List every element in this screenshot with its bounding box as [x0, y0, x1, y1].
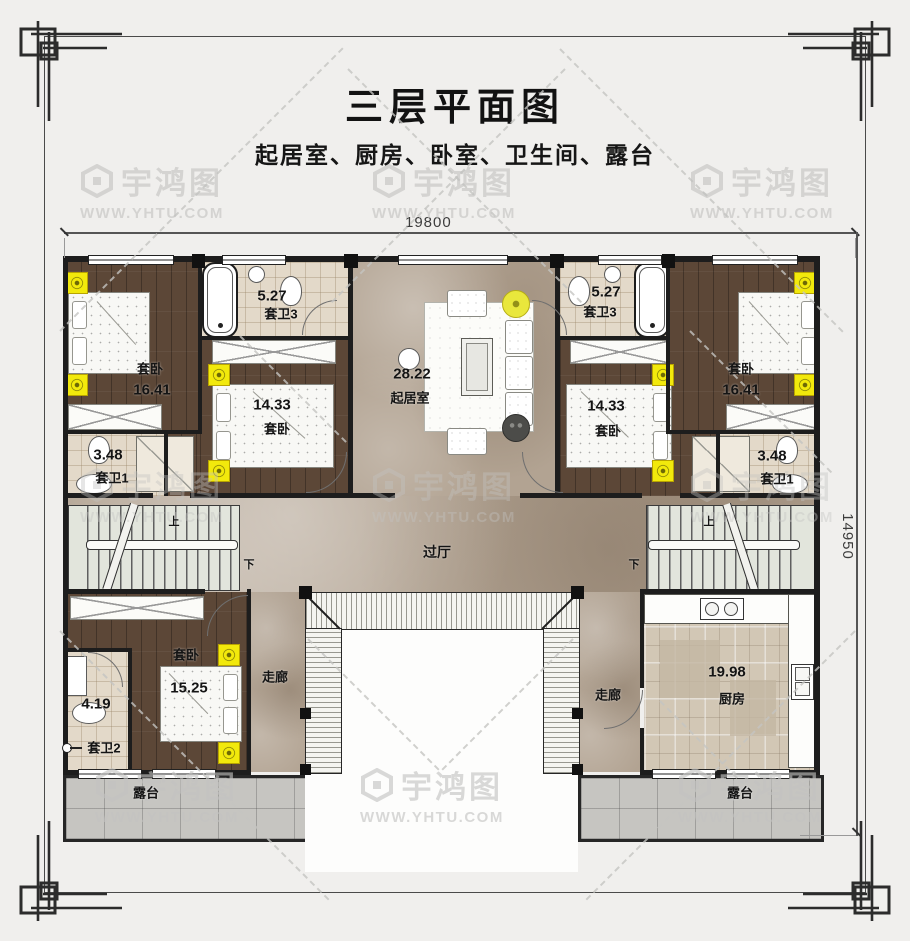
stair-up-label: 上	[704, 513, 715, 529]
room-label: 套卫2	[87, 738, 120, 757]
room-label: 厨房	[719, 689, 745, 708]
yhtu-logo-icon	[95, 768, 129, 802]
room-label: 起居室	[390, 388, 429, 407]
room-label: 套卧	[264, 419, 290, 438]
wall	[557, 336, 670, 340]
dimension-line-top	[64, 232, 856, 234]
pillar	[299, 586, 312, 599]
wall	[815, 589, 820, 775]
pillar	[550, 254, 564, 268]
corner-ornament-icon	[14, 818, 124, 928]
window	[598, 255, 662, 265]
wall	[198, 336, 350, 340]
pillar	[572, 708, 583, 719]
pillar	[300, 708, 311, 719]
page-title: 三层平面图	[0, 76, 910, 131]
window	[712, 255, 798, 265]
room-label: 套卧	[137, 359, 163, 378]
room-label: 走廊	[262, 667, 288, 686]
watermark: 宇鸿图 WWW.YHTU.COM	[690, 158, 834, 222]
stair-handrail	[86, 540, 238, 550]
pillar	[572, 764, 583, 775]
yhtu-logo-icon	[360, 768, 394, 802]
room-label: 套卧	[173, 645, 199, 664]
wall	[666, 430, 818, 434]
room-area: 19.98	[708, 664, 746, 681]
wall	[520, 493, 642, 498]
room-area: 5.27	[257, 288, 286, 305]
dimension-extension	[800, 835, 856, 836]
room-label: 露台	[133, 783, 159, 802]
floor-plan-page: { "title": "三层平面图", "subtitle": "起居室、厨房、…	[0, 0, 910, 941]
stair-handrail	[648, 540, 800, 550]
wall	[63, 648, 130, 652]
yhtu-logo-icon	[690, 468, 724, 502]
window	[398, 255, 508, 265]
dimension-extension	[64, 238, 65, 258]
pillar	[571, 586, 584, 599]
dimension-line-right	[856, 232, 858, 836]
room-area: 14.33	[253, 397, 291, 414]
room-label: 套卧	[728, 359, 754, 378]
wall	[640, 589, 820, 594]
room-label: 套卫3	[583, 302, 616, 321]
stair-down-label: 下	[629, 556, 640, 572]
window	[222, 255, 286, 265]
room-area: 15.25	[170, 680, 208, 697]
stair-down-label: 下	[244, 556, 255, 572]
wall	[666, 256, 670, 432]
room-area: 3.48	[757, 448, 786, 465]
wall	[63, 430, 202, 434]
room-area: 4.19	[81, 696, 110, 713]
room-label: 套卧	[595, 421, 621, 440]
yhtu-logo-icon	[80, 164, 114, 198]
room-label: 套卫1	[95, 468, 128, 487]
watermark: 宇鸿图 WWW.YHTU.COM	[80, 158, 224, 222]
room-area: 5.27	[591, 284, 620, 301]
room-label: 套卫3	[264, 304, 297, 323]
wall	[348, 256, 353, 496]
pillar	[344, 254, 358, 268]
watermark: 宇鸿图 WWW.YHTU.COM	[372, 462, 516, 526]
wall	[63, 589, 205, 594]
pillar	[300, 764, 311, 775]
dimension-right-value: 14950	[839, 513, 856, 560]
watermark: 宇鸿图 WWW.YHTU.COM	[372, 158, 516, 222]
room-label: 露台	[727, 783, 753, 802]
watermark: 宇鸿图 WWW.YHTU.COM	[95, 762, 239, 826]
wall	[640, 728, 644, 772]
wall	[198, 256, 202, 432]
room-area: 16.41	[133, 382, 171, 399]
stair-up-label: 上	[169, 513, 180, 529]
yhtu-logo-icon	[690, 164, 724, 198]
pillar	[662, 254, 675, 268]
room-label: 过厅	[423, 542, 451, 562]
room-area: 3.48	[93, 447, 122, 464]
room-label: 走廊	[595, 685, 621, 704]
room-label: 套卫1	[760, 469, 793, 488]
yhtu-logo-icon	[372, 164, 406, 198]
room-area: 16.41	[722, 382, 760, 399]
wall	[640, 592, 644, 688]
yhtu-logo-icon	[678, 768, 712, 802]
wall	[128, 648, 132, 772]
room-area: 14.33	[587, 398, 625, 415]
room-area: 28.22	[393, 366, 431, 383]
leader-line	[70, 747, 82, 749]
watermark: 宇鸿图 WWW.YHTU.COM	[360, 762, 504, 826]
yhtu-logo-icon	[372, 468, 406, 502]
pillar	[192, 254, 205, 268]
